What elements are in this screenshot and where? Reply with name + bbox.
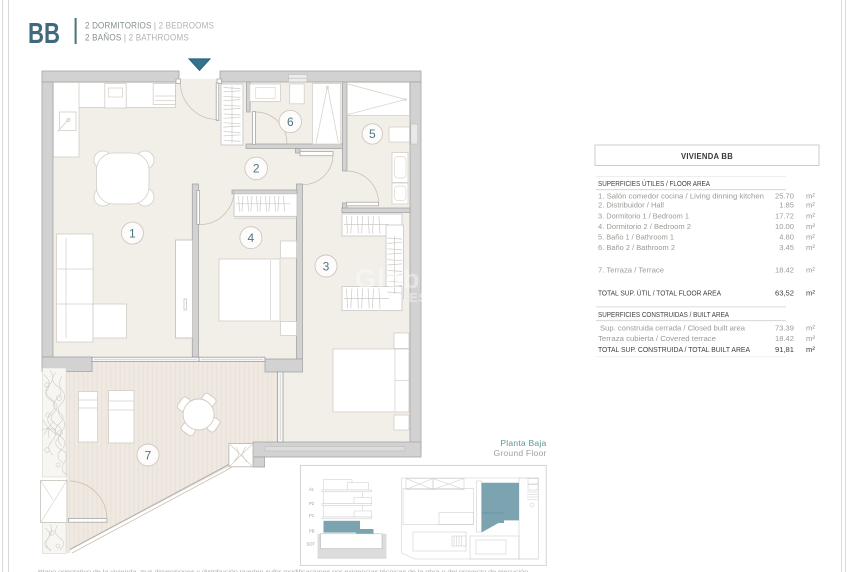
svg-text:2 BAÑOS | 2 BATHROOMS: 2 BAÑOS | 2 BATHROOMS xyxy=(85,33,189,43)
svg-text:4.80: 4.80 xyxy=(779,233,794,242)
svg-text:6. Baño 2 / Bathroom 2: 6. Baño 2 / Bathroom 2 xyxy=(598,243,675,252)
svg-text:Planta Baja: Planta Baja xyxy=(500,438,546,448)
svg-text:m²: m² xyxy=(806,334,815,343)
svg-text:1. Salón comedor cocina / Livi: 1. Salón comedor cocina / Living dinning… xyxy=(598,191,764,200)
svg-text:SUPERFICIES CONSTRUIDAS / BUIL: SUPERFICIES CONSTRUIDAS / BUILT AREA xyxy=(598,310,730,319)
svg-text:7. Terraza / Terrace: 7. Terraza / Terrace xyxy=(598,265,664,274)
svg-text:Sup. construida cerrada / Clos: Sup. construida cerrada / Closed built a… xyxy=(600,323,746,332)
svg-text:m²: m² xyxy=(806,323,815,332)
svg-text:25.70: 25.70 xyxy=(775,191,794,200)
svg-text:TOTAL SUP. CONSTRUIDA / TOTAL: TOTAL SUP. CONSTRUIDA / TOTAL BUILT AREA xyxy=(598,345,751,354)
svg-text:Ground Floor: Ground Floor xyxy=(493,448,546,458)
svg-text:91,81: 91,81 xyxy=(775,345,794,354)
svg-text:m²: m² xyxy=(806,243,815,252)
svg-text:18.42: 18.42 xyxy=(775,334,794,343)
svg-text:2. Distribuidor / Hall: 2. Distribuidor / Hall xyxy=(598,201,664,210)
svg-text:5: 5 xyxy=(369,127,376,141)
svg-text:Terraza cubierta / Covered ter: Terraza cubierta / Covered terrace xyxy=(598,334,716,343)
svg-text:10.00: 10.00 xyxy=(775,222,794,231)
svg-text:5. Baño 1 / Bathroom 1: 5. Baño 1 / Bathroom 1 xyxy=(598,233,674,242)
svg-text:2 DORMITORIOS | 2 BEDROOMS: 2 DORMITORIOS | 2 BEDROOMS xyxy=(85,21,214,31)
svg-text:SOT: SOT xyxy=(307,542,316,547)
svg-text:P2: P2 xyxy=(309,501,315,506)
svg-text:1.85: 1.85 xyxy=(779,201,794,210)
svg-text:1: 1 xyxy=(129,226,136,240)
svg-text:2: 2 xyxy=(253,162,260,176)
svg-text:m²: m² xyxy=(806,345,815,354)
svg-text:18.42: 18.42 xyxy=(775,265,794,274)
svg-text:17.72: 17.72 xyxy=(775,211,794,220)
svg-text:TOTAL SUP. ÚTIL / TOTAL FLOOR: TOTAL SUP. ÚTIL / TOTAL FLOOR AREA xyxy=(598,288,722,297)
svg-text:PB: PB xyxy=(309,528,315,533)
svg-text:3: 3 xyxy=(323,259,330,273)
svg-text:7: 7 xyxy=(145,448,152,462)
svg-text:ES: ES xyxy=(409,290,428,305)
svg-text:4: 4 xyxy=(248,231,255,245)
svg-text:Át.: Át. xyxy=(309,487,314,492)
svg-text:Global: Global xyxy=(355,264,445,294)
svg-text:73.39: 73.39 xyxy=(775,323,794,332)
svg-text:3. Dormitorio 1 / Bedroom 1: 3. Dormitorio 1 / Bedroom 1 xyxy=(598,211,689,220)
svg-text:BB: BB xyxy=(28,18,60,50)
svg-text:m²: m² xyxy=(806,211,815,220)
svg-text:SUPERFICIES ÚTILES / FLOOR ARE: SUPERFICIES ÚTILES / FLOOR AREA xyxy=(598,179,711,188)
svg-text:63,52: 63,52 xyxy=(775,288,794,297)
svg-text:4. Dormitorio 2 / Bedroom 2: 4. Dormitorio 2 / Bedroom 2 xyxy=(598,222,691,231)
svg-text:VIVIENDA BB: VIVIENDA BB xyxy=(681,151,733,161)
svg-text:m²: m² xyxy=(806,265,815,274)
svg-text:3.45: 3.45 xyxy=(779,243,794,252)
svg-text:m²: m² xyxy=(806,288,815,297)
svg-text:m²: m² xyxy=(806,233,815,242)
svg-text:P1: P1 xyxy=(309,513,315,518)
svg-text:m²: m² xyxy=(806,222,815,231)
svg-text:m²: m² xyxy=(806,191,815,200)
svg-text:6: 6 xyxy=(287,115,294,129)
svg-text:m²: m² xyxy=(806,201,815,210)
